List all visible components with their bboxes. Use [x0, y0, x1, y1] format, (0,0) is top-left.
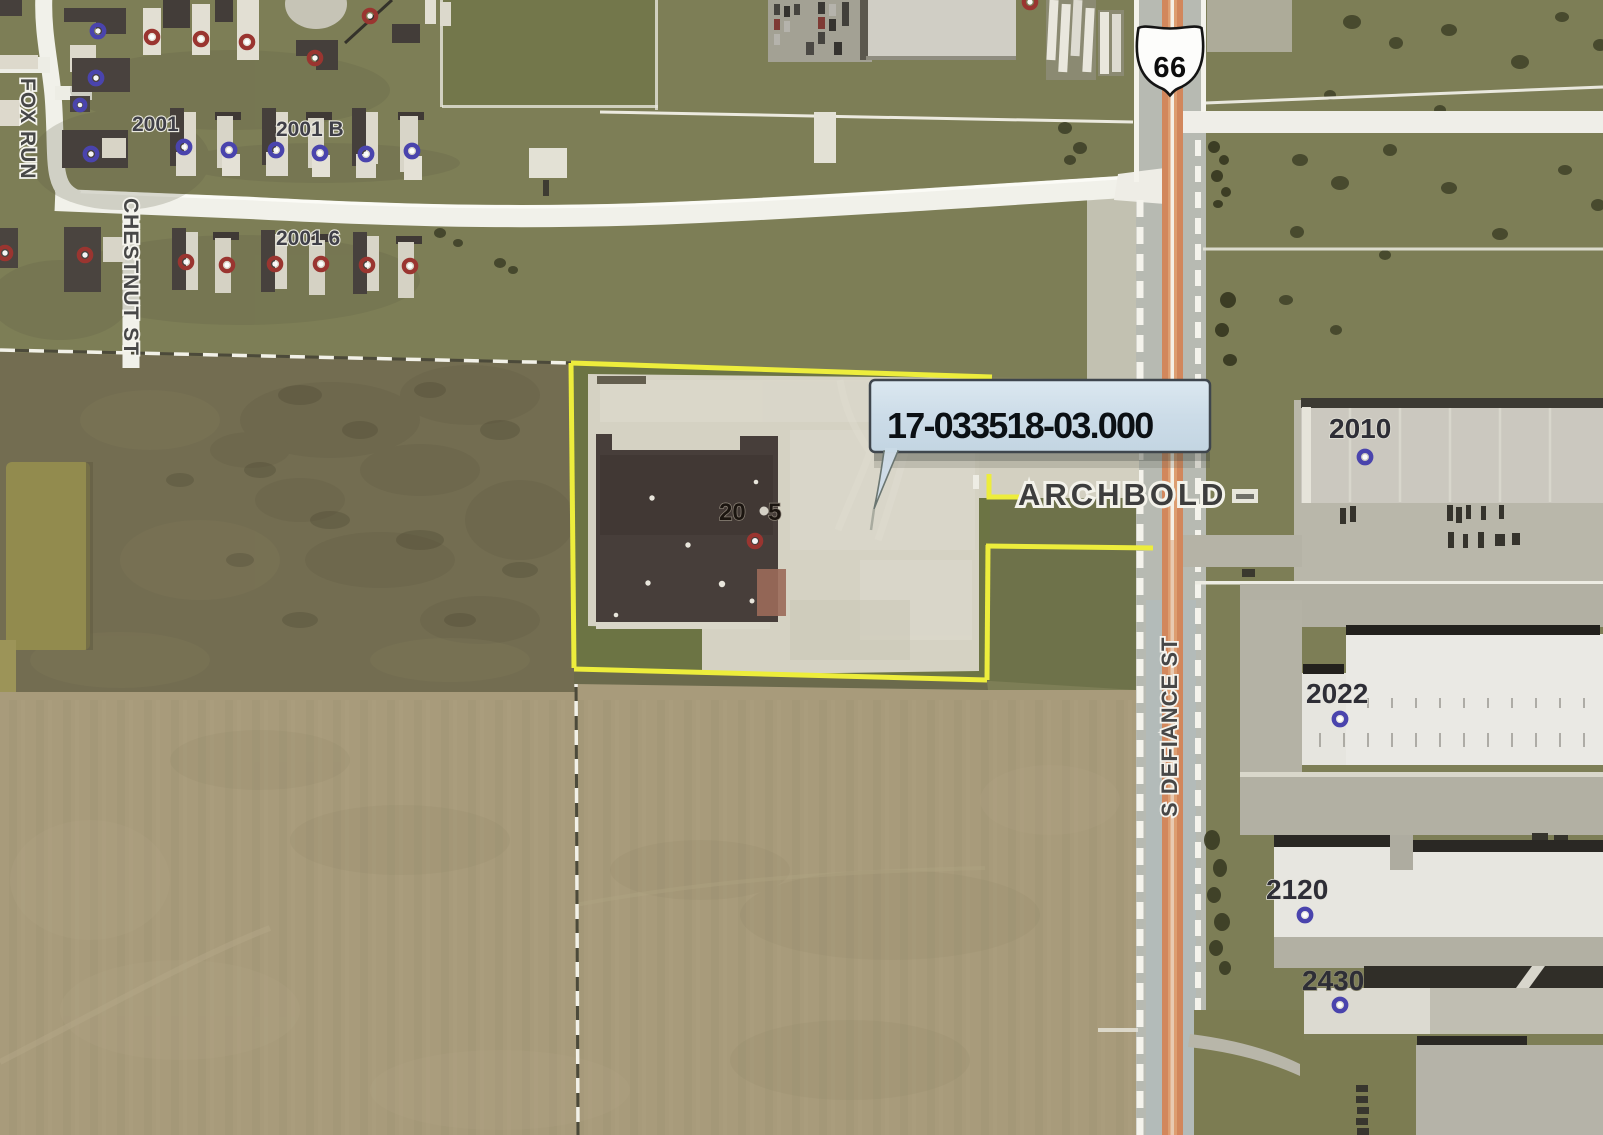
svg-text:5: 5 [768, 499, 781, 526]
svg-text:2430: 2430 [1302, 965, 1364, 996]
svg-text:17-033518-03.000: 17-033518-03.000 [887, 405, 1153, 446]
svg-text:ARCHBOLD: ARCHBOLD [1018, 477, 1227, 512]
svg-text:66: 66 [1153, 52, 1186, 84]
svg-text:FOX RUN: FOX RUN [16, 78, 39, 180]
svg-text:CHESTNUT ST: CHESTNUT ST [119, 198, 142, 356]
svg-text:2120: 2120 [1266, 874, 1328, 905]
svg-text:20: 20 [719, 499, 746, 526]
svg-text:2001 B: 2001 B [276, 118, 344, 141]
svg-text:2022: 2022 [1306, 678, 1368, 709]
svg-text:2010: 2010 [1329, 413, 1391, 444]
svg-text:S DEFIANCE ST: S DEFIANCE ST [1157, 637, 1182, 817]
svg-text:2001: 2001 [132, 113, 179, 136]
svg-text:2001 6: 2001 6 [276, 227, 340, 250]
